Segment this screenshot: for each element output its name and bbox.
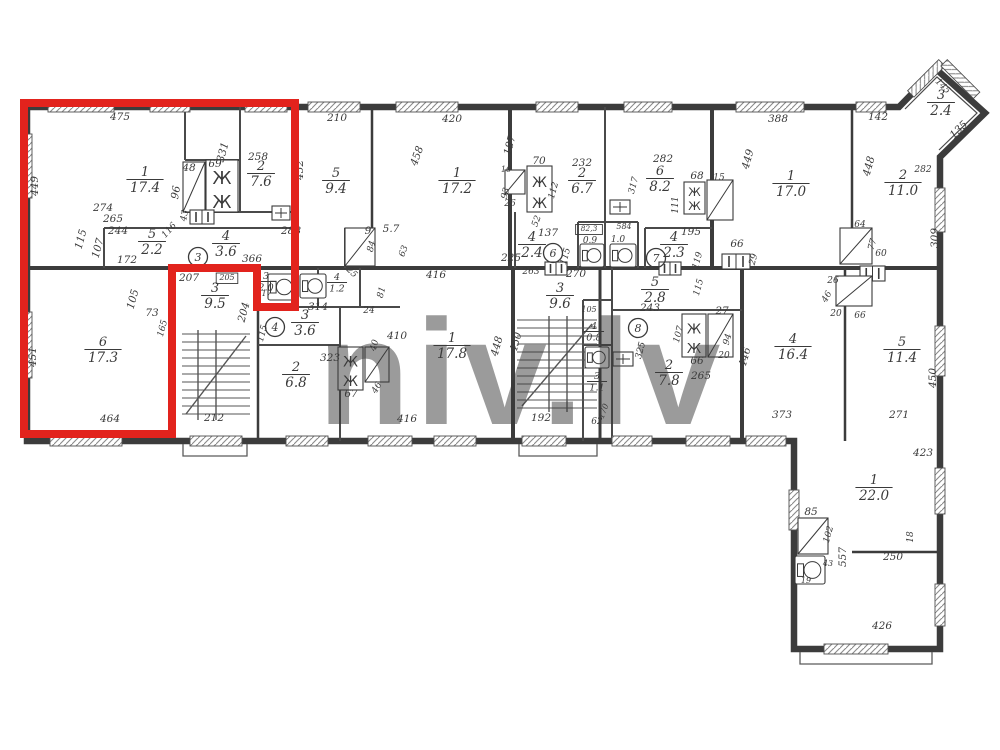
svg-text:3.6: 3.6 <box>294 323 316 339</box>
svg-text:6.7: 6.7 <box>571 181 593 197</box>
svg-text:9: 9 <box>365 225 372 237</box>
svg-text:105: 105 <box>125 288 142 311</box>
svg-text:6.8: 6.8 <box>285 375 307 391</box>
svg-text:449: 449 <box>739 148 756 172</box>
svg-text:4: 4 <box>333 272 340 283</box>
room-label: 117.4 <box>126 165 163 196</box>
svg-text:195: 195 <box>681 226 701 238</box>
svg-text:2: 2 <box>291 360 300 375</box>
svg-text:2.2: 2.2 <box>140 242 162 258</box>
svg-text:1.0: 1.0 <box>611 235 626 245</box>
svg-text:4: 4 <box>788 332 797 347</box>
svg-text:46: 46 <box>820 289 835 305</box>
wc-icon <box>580 244 604 267</box>
svg-text:458: 458 <box>408 144 427 168</box>
svg-text:Ж: Ж <box>213 169 232 189</box>
staircase-left <box>182 330 250 420</box>
svg-text:1: 1 <box>141 165 149 180</box>
svg-text:85: 85 <box>804 506 818 518</box>
svg-text:16.4: 16.4 <box>778 347 808 363</box>
svg-text:5.7: 5.7 <box>383 223 400 235</box>
closet-diag-icon <box>707 180 733 220</box>
svg-text:115: 115 <box>73 228 90 251</box>
room-label: 59.4 <box>322 166 350 197</box>
svg-text:232: 232 <box>571 157 592 169</box>
svg-text:Ж: Ж <box>532 196 547 212</box>
door2-icon <box>722 254 750 269</box>
svg-text:19: 19 <box>801 576 811 585</box>
svg-text:1: 1 <box>870 473 878 488</box>
svg-text:187: 187 <box>502 134 519 157</box>
svg-text:Ж: Ж <box>213 193 232 213</box>
room-label: 117.0 <box>772 169 809 200</box>
room-label: 26.8 <box>282 360 310 391</box>
floor-plan-drawing: ЖЖЖЖЖЖЖЖЖЖ 117.427.652.243.6617.339.532.… <box>0 0 1000 750</box>
svg-text:5: 5 <box>332 166 340 181</box>
svg-text:2.4: 2.4 <box>929 103 951 119</box>
svg-text:423: 423 <box>912 447 933 459</box>
svg-text:317: 317 <box>627 176 641 195</box>
wc-icon <box>610 244 636 267</box>
vent-icon <box>272 206 290 220</box>
entrance-number: 3 <box>189 248 208 267</box>
svg-text:4: 4 <box>271 321 279 334</box>
svg-text:225: 225 <box>500 252 521 264</box>
svg-text:Ж: Ж <box>532 175 547 191</box>
svg-text:3: 3 <box>195 251 202 264</box>
room-label: 68.2 <box>646 164 674 195</box>
svg-text:388: 388 <box>768 113 788 125</box>
svg-text:204: 204 <box>235 301 252 324</box>
svg-text:282: 282 <box>913 165 931 175</box>
room-label: 32.4 <box>927 88 955 119</box>
svg-text:6: 6 <box>550 247 557 260</box>
svg-text:11.0: 11.0 <box>888 183 918 199</box>
svg-text:207: 207 <box>178 272 199 284</box>
svg-text:48: 48 <box>181 162 196 174</box>
svg-text:60: 60 <box>875 249 887 259</box>
svg-text:66: 66 <box>730 238 744 250</box>
svg-text:282: 282 <box>652 153 673 165</box>
door2-icon <box>659 262 681 275</box>
svg-text:584: 584 <box>616 222 631 231</box>
watermark-text: niv.lv <box>318 288 726 456</box>
svg-text:309: 309 <box>929 228 941 248</box>
svg-text:7.6: 7.6 <box>250 174 272 190</box>
svg-text:557: 557 <box>837 547 849 567</box>
svg-text:96: 96 <box>169 185 183 201</box>
svg-text:1: 1 <box>787 169 795 184</box>
svg-text:26: 26 <box>826 276 839 286</box>
svg-text:449: 449 <box>29 176 41 197</box>
svg-text:205: 205 <box>218 273 234 282</box>
svg-text:22.0: 22.0 <box>858 488 889 504</box>
svg-text:7: 7 <box>653 252 660 265</box>
svg-text:64: 64 <box>854 220 866 230</box>
svg-text:451: 451 <box>27 347 39 368</box>
svg-text:18: 18 <box>906 531 916 543</box>
room-label: 122.0 <box>855 473 892 504</box>
entrance-number: 6 <box>544 244 563 263</box>
svg-text:84: 84 <box>366 239 379 253</box>
svg-text:43: 43 <box>822 559 833 568</box>
svg-text:17.4: 17.4 <box>130 180 160 196</box>
svg-text:416: 416 <box>425 269 446 281</box>
svg-text:1: 1 <box>453 166 461 181</box>
svg-text:9.4: 9.4 <box>325 181 346 197</box>
svg-text:73: 73 <box>145 307 159 319</box>
svg-text:475: 475 <box>109 111 130 123</box>
svg-text:6: 6 <box>99 335 107 350</box>
svg-text:20: 20 <box>829 309 842 319</box>
svg-text:142: 142 <box>868 111 888 123</box>
svg-text:263: 263 <box>521 267 539 277</box>
svg-text:Ж: Ж <box>688 199 701 213</box>
room-label: 27.6 <box>247 159 275 190</box>
svg-text:16: 16 <box>501 165 511 174</box>
svg-text:265: 265 <box>102 213 123 225</box>
svg-text:366: 366 <box>242 253 262 265</box>
svg-text:258: 258 <box>247 151 268 163</box>
svg-text:420: 420 <box>441 113 462 125</box>
svg-text:464: 464 <box>99 413 120 425</box>
svg-text:2: 2 <box>898 168 907 183</box>
svg-text:17.0: 17.0 <box>776 184 806 200</box>
svg-text:82,3: 82,3 <box>581 224 598 233</box>
svg-text:4: 4 <box>221 229 230 244</box>
svg-text:250: 250 <box>882 551 903 563</box>
svg-text:116: 116 <box>160 221 179 241</box>
svg-text:172: 172 <box>117 254 137 266</box>
room-label: 43.6 <box>212 229 240 260</box>
svg-text:4: 4 <box>527 230 536 245</box>
svg-text:17.3: 17.3 <box>88 350 118 366</box>
svg-text:8.2: 8.2 <box>649 179 670 195</box>
room-label: 617.3 <box>84 335 121 366</box>
svg-text:11.4: 11.4 <box>887 350 917 366</box>
svg-text:5: 5 <box>148 227 156 242</box>
closet-diag-icon <box>836 276 872 306</box>
svg-text:3.6: 3.6 <box>215 244 237 260</box>
svg-text:29: 29 <box>747 252 760 267</box>
svg-text:17.2: 17.2 <box>442 181 472 197</box>
room-label: 416.4 <box>774 332 811 363</box>
svg-text:63: 63 <box>397 244 410 258</box>
svg-text:271: 271 <box>888 409 909 421</box>
svg-text:446: 446 <box>736 346 753 370</box>
svg-text:5: 5 <box>898 335 906 350</box>
svg-text:115: 115 <box>559 247 573 266</box>
svg-text:3: 3 <box>263 271 269 282</box>
svg-text:210: 210 <box>326 112 347 124</box>
svg-text:43: 43 <box>179 209 191 223</box>
svg-text:426: 426 <box>871 620 892 632</box>
svg-text:70: 70 <box>532 155 546 167</box>
svg-text:26: 26 <box>503 199 516 209</box>
svg-text:4: 4 <box>669 230 678 245</box>
room-label: 39.5 <box>201 281 229 312</box>
wardrobe-icon: ЖЖ <box>527 166 552 212</box>
floor-plan-scan: ЖЖЖЖЖЖЖЖЖЖ 117.427.652.243.6617.339.532.… <box>0 0 1000 750</box>
svg-text:6: 6 <box>656 164 664 179</box>
svg-text:2.4: 2.4 <box>520 245 542 261</box>
svg-text:111: 111 <box>671 196 681 213</box>
svg-text:66: 66 <box>854 311 866 321</box>
svg-text:450: 450 <box>927 368 939 389</box>
svg-text:448: 448 <box>860 155 877 179</box>
svg-text:Ж: Ж <box>688 185 701 199</box>
room-label: 117.2 <box>438 166 475 197</box>
svg-text:373: 373 <box>772 409 792 421</box>
svg-text:137: 137 <box>538 227 558 239</box>
svg-text:212: 212 <box>203 412 224 424</box>
svg-text:15: 15 <box>713 173 725 183</box>
svg-text:9.5: 9.5 <box>204 296 225 312</box>
wardrobe-icon: ЖЖ <box>684 182 705 214</box>
door2-icon <box>190 210 214 224</box>
svg-text:0.9: 0.9 <box>583 236 598 246</box>
svg-text:244: 244 <box>107 225 128 237</box>
room-label: 26.7 <box>568 166 596 197</box>
vent-icon <box>610 200 630 214</box>
svg-text:68: 68 <box>690 170 704 182</box>
svg-text:270: 270 <box>565 268 586 280</box>
room-label: 511.4 <box>883 335 920 366</box>
